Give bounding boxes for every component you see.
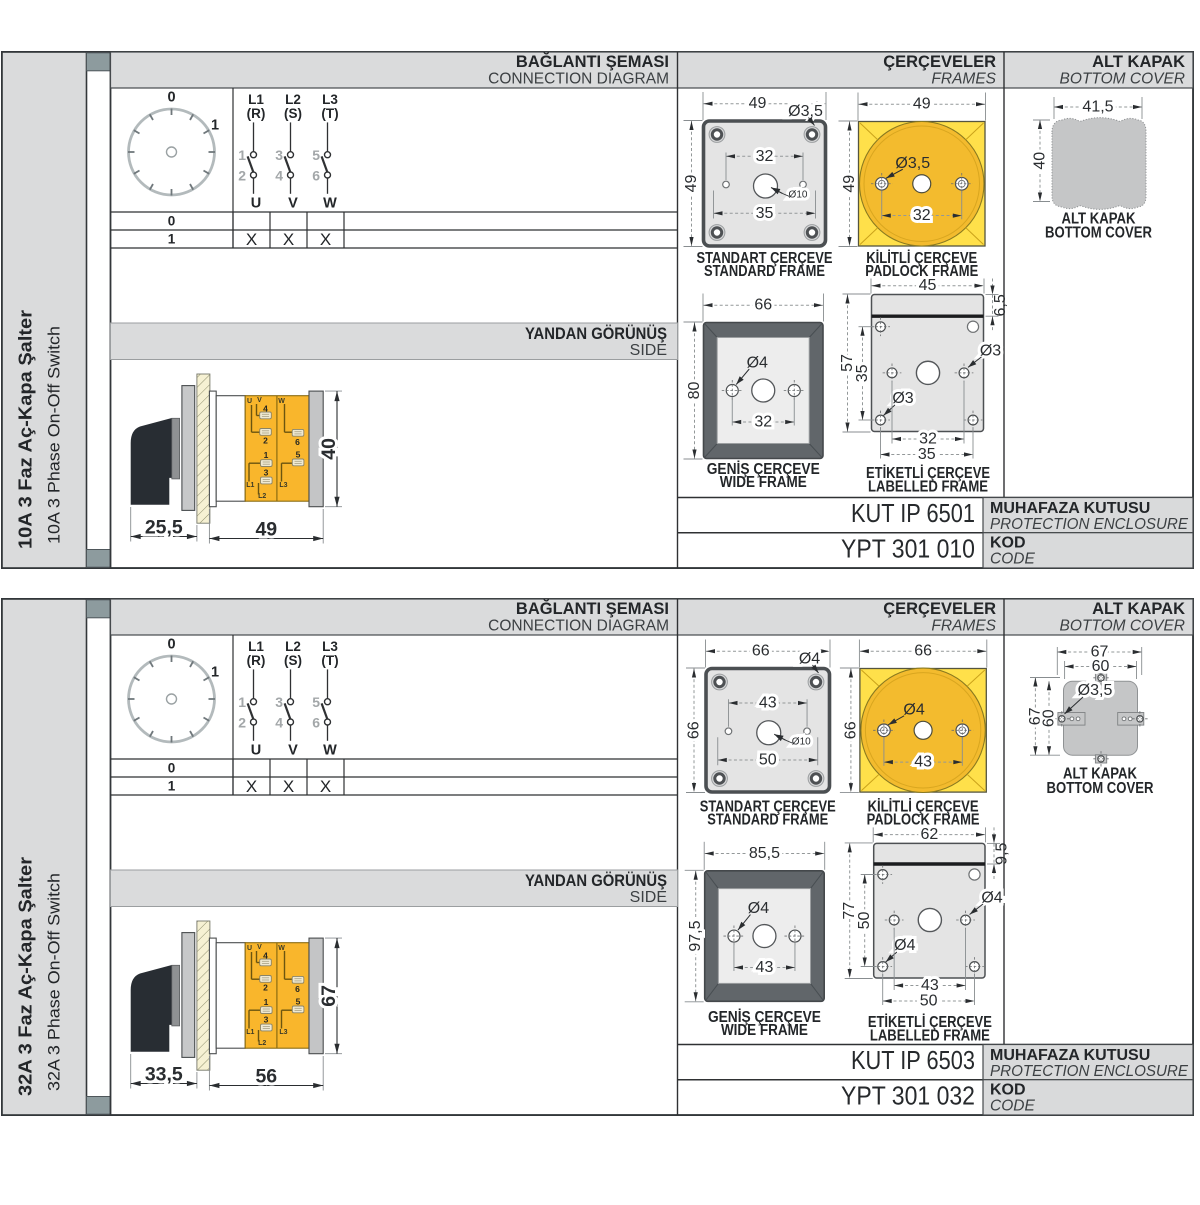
svg-text:1: 1 bbox=[238, 694, 246, 710]
svg-text:35: 35 bbox=[756, 205, 774, 222]
svg-text:WIDE FRAME: WIDE FRAME bbox=[721, 1022, 808, 1039]
svg-text:LABELLED FRAME: LABELLED FRAME bbox=[868, 479, 988, 496]
svg-text:66: 66 bbox=[842, 721, 859, 739]
svg-text:9,5: 9,5 bbox=[994, 842, 1011, 864]
svg-text:L1: L1 bbox=[248, 639, 264, 654]
svg-text:32: 32 bbox=[754, 414, 772, 431]
svg-text:X: X bbox=[246, 777, 257, 796]
svg-text:40: 40 bbox=[318, 438, 340, 460]
svg-text:LABELLED FRAME: LABELLED FRAME bbox=[870, 1028, 990, 1045]
svg-text:50: 50 bbox=[856, 912, 873, 930]
svg-text:YPT 301 032: YPT 301 032 bbox=[841, 1083, 975, 1111]
svg-text:1: 1 bbox=[168, 779, 176, 794]
svg-text:66: 66 bbox=[914, 643, 932, 660]
svg-text:STANDARD FRAME: STANDARD FRAME bbox=[704, 263, 825, 280]
svg-text:W: W bbox=[323, 743, 337, 759]
svg-text:Ø3: Ø3 bbox=[980, 342, 1001, 359]
svg-text:BAĞLANTI ŞEMASI: BAĞLANTI ŞEMASI bbox=[516, 52, 669, 71]
svg-text:32: 32 bbox=[913, 207, 931, 224]
svg-text:CODE: CODE bbox=[990, 1098, 1035, 1115]
svg-text:3: 3 bbox=[264, 468, 269, 478]
svg-text:97,5: 97,5 bbox=[687, 920, 704, 951]
svg-text:60: 60 bbox=[1041, 709, 1058, 727]
svg-text:U: U bbox=[247, 398, 252, 405]
svg-text:BOTTOM COVER: BOTTOM COVER bbox=[1047, 780, 1154, 797]
svg-text:X: X bbox=[320, 230, 331, 249]
svg-text:66: 66 bbox=[686, 721, 703, 739]
svg-text:FRAMES: FRAMES bbox=[931, 618, 996, 635]
svg-text:(S): (S) bbox=[284, 653, 302, 668]
svg-text:L3: L3 bbox=[279, 1029, 287, 1036]
svg-text:PROTECTION ENCLOSURE: PROTECTION ENCLOSURE bbox=[990, 516, 1189, 533]
svg-text:KUT IP 6501: KUT IP 6501 bbox=[851, 500, 975, 528]
svg-text:0: 0 bbox=[167, 637, 175, 653]
svg-text:BOTTOM COVER: BOTTOM COVER bbox=[1045, 225, 1152, 242]
svg-text:Ø3,5: Ø3,5 bbox=[1078, 682, 1113, 699]
svg-text:1: 1 bbox=[264, 997, 269, 1007]
svg-text:U: U bbox=[247, 945, 252, 952]
svg-text:L3: L3 bbox=[279, 482, 287, 489]
svg-text:Ø3: Ø3 bbox=[892, 390, 913, 407]
svg-text:1: 1 bbox=[211, 118, 219, 134]
svg-text:(T): (T) bbox=[321, 106, 338, 121]
svg-text:YANDAN GÖRÜNÜŞ: YANDAN GÖRÜNÜŞ bbox=[525, 871, 667, 890]
svg-text:KOD: KOD bbox=[990, 1082, 1026, 1099]
svg-text:5: 5 bbox=[312, 147, 320, 163]
svg-text:YPT 301 010: YPT 301 010 bbox=[841, 536, 975, 564]
svg-text:Ø4: Ø4 bbox=[894, 937, 915, 954]
svg-text:V: V bbox=[257, 944, 262, 951]
svg-text:0: 0 bbox=[168, 761, 176, 776]
svg-text:WIDE FRAME: WIDE FRAME bbox=[720, 474, 807, 491]
svg-text:BOTTOM COVER: BOTTOM COVER bbox=[1060, 71, 1185, 88]
svg-text:50: 50 bbox=[920, 993, 938, 1010]
svg-text:Ø3,5: Ø3,5 bbox=[788, 103, 823, 120]
svg-text:35: 35 bbox=[854, 364, 871, 382]
svg-text:Ø10: Ø10 bbox=[792, 736, 811, 747]
svg-text:(R): (R) bbox=[247, 106, 266, 121]
svg-text:Ø4: Ø4 bbox=[981, 890, 1002, 907]
svg-text:Ø4: Ø4 bbox=[747, 355, 768, 372]
svg-text:U: U bbox=[251, 196, 261, 212]
svg-text:32A 3 Faz Aç-Kapa Şalter: 32A 3 Faz Aç-Kapa Şalter bbox=[15, 857, 36, 1096]
svg-text:5: 5 bbox=[296, 997, 301, 1007]
svg-text:PROTECTION ENCLOSURE: PROTECTION ENCLOSURE bbox=[990, 1063, 1189, 1080]
svg-text:3: 3 bbox=[264, 1015, 269, 1025]
svg-text:CODE: CODE bbox=[990, 551, 1035, 568]
svg-text:L2: L2 bbox=[258, 493, 266, 500]
svg-text:43: 43 bbox=[759, 695, 777, 712]
svg-text:FRAMES: FRAMES bbox=[931, 71, 996, 88]
svg-text:STANDARD FRAME: STANDARD FRAME bbox=[707, 812, 828, 829]
svg-text:Ø10: Ø10 bbox=[789, 190, 808, 201]
svg-text:5: 5 bbox=[312, 694, 320, 710]
svg-text:X: X bbox=[283, 230, 294, 249]
svg-text:Ø4: Ø4 bbox=[799, 651, 820, 668]
svg-text:W: W bbox=[278, 398, 285, 405]
svg-text:50: 50 bbox=[759, 752, 777, 769]
svg-text:0: 0 bbox=[168, 214, 176, 229]
svg-text:V: V bbox=[257, 397, 262, 404]
svg-text:49: 49 bbox=[255, 519, 277, 541]
svg-text:85,5: 85,5 bbox=[749, 845, 780, 862]
svg-text:L3: L3 bbox=[322, 639, 338, 654]
svg-text:CONNECTION DIAGRAM: CONNECTION DIAGRAM bbox=[488, 618, 669, 635]
svg-text:L3: L3 bbox=[322, 92, 338, 107]
svg-text:43: 43 bbox=[921, 977, 939, 994]
svg-text:YANDAN GÖRÜNÜŞ: YANDAN GÖRÜNÜŞ bbox=[525, 324, 667, 343]
svg-text:MUHAFAZA KUTUSU: MUHAFAZA KUTUSU bbox=[990, 1047, 1150, 1064]
svg-text:41,5: 41,5 bbox=[1082, 99, 1113, 116]
svg-text:V: V bbox=[288, 196, 298, 212]
svg-text:X: X bbox=[246, 230, 257, 249]
svg-text:1: 1 bbox=[211, 665, 219, 681]
svg-text:49: 49 bbox=[683, 175, 700, 193]
svg-text:6: 6 bbox=[295, 437, 300, 447]
svg-text:SIDE: SIDE bbox=[630, 342, 667, 359]
svg-text:BAĞLANTI ŞEMASI: BAĞLANTI ŞEMASI bbox=[516, 599, 669, 618]
svg-text:66: 66 bbox=[752, 643, 770, 660]
svg-text:49: 49 bbox=[913, 96, 931, 113]
svg-text:43: 43 bbox=[914, 754, 932, 771]
svg-text:35: 35 bbox=[918, 446, 936, 463]
svg-text:Ø3,5: Ø3,5 bbox=[895, 155, 930, 172]
svg-text:10A 3 Phase On-Off Switch: 10A 3 Phase On-Off Switch bbox=[45, 326, 64, 544]
svg-text:CONNECTION DIAGRAM: CONNECTION DIAGRAM bbox=[488, 71, 669, 88]
svg-text:2: 2 bbox=[263, 436, 268, 446]
svg-text:45: 45 bbox=[919, 277, 937, 294]
svg-text:32: 32 bbox=[919, 431, 937, 448]
svg-text:1: 1 bbox=[168, 232, 176, 247]
svg-text:L1: L1 bbox=[246, 1029, 254, 1036]
svg-text:X: X bbox=[283, 777, 294, 796]
svg-text:SIDE: SIDE bbox=[630, 889, 667, 906]
svg-text:U: U bbox=[251, 743, 261, 759]
svg-text:67: 67 bbox=[318, 985, 340, 1007]
svg-text:L1: L1 bbox=[248, 92, 264, 107]
svg-text:4: 4 bbox=[275, 715, 283, 731]
svg-text:2: 2 bbox=[238, 715, 246, 731]
svg-text:5: 5 bbox=[296, 450, 301, 460]
svg-text:6: 6 bbox=[312, 168, 320, 184]
svg-text:32: 32 bbox=[756, 148, 774, 165]
svg-text:KUT IP 6503: KUT IP 6503 bbox=[851, 1047, 975, 1075]
svg-text:L2: L2 bbox=[285, 92, 301, 107]
svg-text:33,5: 33,5 bbox=[145, 1064, 183, 1086]
svg-text:MUHAFAZA KUTUSU: MUHAFAZA KUTUSU bbox=[990, 500, 1150, 517]
svg-text:V: V bbox=[288, 743, 298, 759]
svg-text:2: 2 bbox=[238, 168, 246, 184]
svg-text:6: 6 bbox=[312, 715, 320, 731]
svg-text:56: 56 bbox=[255, 1066, 277, 1088]
svg-text:ALT KAPAK: ALT KAPAK bbox=[1092, 600, 1185, 618]
svg-text:66: 66 bbox=[754, 297, 772, 314]
svg-text:49: 49 bbox=[749, 95, 767, 112]
svg-text:40: 40 bbox=[1032, 152, 1049, 170]
svg-text:KOD: KOD bbox=[990, 535, 1026, 552]
svg-text:ALT KAPAK: ALT KAPAK bbox=[1092, 53, 1185, 71]
svg-text:62: 62 bbox=[920, 826, 938, 843]
svg-text:43: 43 bbox=[756, 959, 774, 976]
svg-text:80: 80 bbox=[686, 382, 703, 400]
svg-text:X: X bbox=[320, 777, 331, 796]
svg-text:6: 6 bbox=[295, 984, 300, 994]
svg-text:1: 1 bbox=[238, 147, 246, 163]
svg-text:ÇERÇEVELER: ÇERÇEVELER bbox=[883, 600, 996, 618]
svg-text:L2: L2 bbox=[285, 639, 301, 654]
svg-text:Ø4: Ø4 bbox=[903, 701, 924, 718]
svg-text:Ø4: Ø4 bbox=[748, 900, 769, 917]
svg-text:60: 60 bbox=[1092, 658, 1110, 675]
svg-text:(S): (S) bbox=[284, 106, 302, 121]
svg-text:L2: L2 bbox=[258, 1040, 266, 1047]
svg-text:4: 4 bbox=[275, 168, 283, 184]
svg-text:BOTTOM COVER: BOTTOM COVER bbox=[1060, 618, 1185, 635]
svg-text:L1: L1 bbox=[246, 482, 254, 489]
svg-text:(T): (T) bbox=[321, 653, 338, 668]
svg-text:1: 1 bbox=[264, 450, 269, 460]
svg-text:ÇERÇEVELER: ÇERÇEVELER bbox=[883, 53, 996, 71]
svg-text:49: 49 bbox=[841, 175, 858, 193]
svg-text:3: 3 bbox=[275, 147, 283, 163]
svg-text:(R): (R) bbox=[247, 653, 266, 668]
svg-text:6,5: 6,5 bbox=[992, 294, 1009, 316]
svg-text:2: 2 bbox=[263, 983, 268, 993]
svg-text:0: 0 bbox=[167, 90, 175, 106]
svg-text:32A 3 Phase On-Off Switch: 32A 3 Phase On-Off Switch bbox=[45, 873, 64, 1091]
svg-text:3: 3 bbox=[275, 694, 283, 710]
svg-text:W: W bbox=[278, 945, 285, 952]
svg-text:W: W bbox=[323, 196, 337, 212]
svg-text:25,5: 25,5 bbox=[145, 517, 183, 539]
svg-text:10A 3 Faz Aç-Kapa Şalter: 10A 3 Faz Aç-Kapa Şalter bbox=[15, 310, 36, 549]
